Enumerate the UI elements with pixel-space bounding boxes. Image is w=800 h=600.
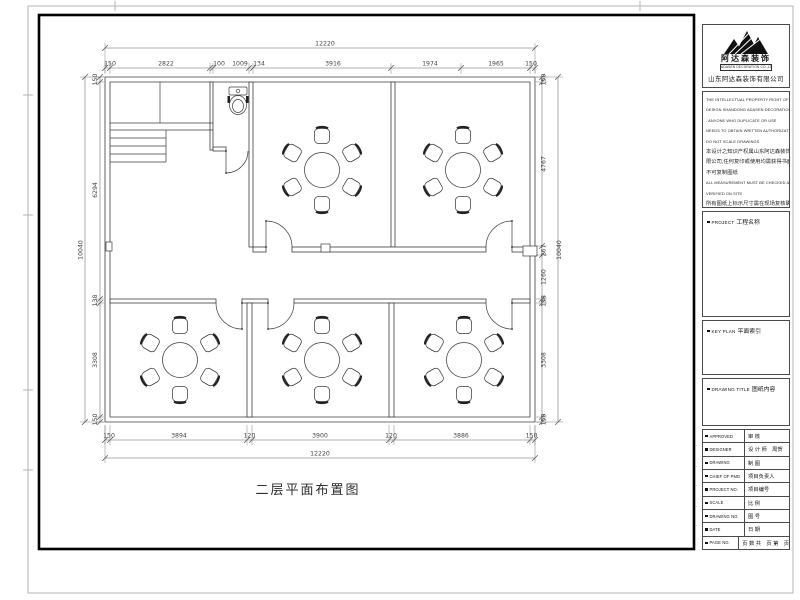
company-name: 山东阿达森装饰有限公司 bbox=[703, 74, 789, 83]
dim-label: 3886 bbox=[453, 433, 469, 440]
project-section: PROJECT 工程名称 bbox=[702, 211, 790, 317]
chair bbox=[315, 387, 330, 404]
disclaimer-line: THE INTELLECTUAL PROPERTY RIGHT OF THIS bbox=[706, 95, 788, 105]
chair bbox=[341, 177, 363, 198]
chair bbox=[315, 317, 330, 334]
row-label: PAGE NO. bbox=[703, 537, 738, 549]
chair bbox=[422, 142, 444, 163]
dim-label: 100 bbox=[213, 61, 225, 68]
dim-label: 150 bbox=[525, 61, 537, 68]
disclaimer-line: . ANYONE WHO DUPLICATE OR USE bbox=[706, 116, 788, 126]
dim-label: 3900 bbox=[312, 433, 328, 440]
bullet-icon bbox=[705, 435, 708, 438]
dim-label: 12220 bbox=[310, 451, 330, 458]
round-table bbox=[447, 343, 482, 378]
dim-label: 10040 bbox=[556, 240, 563, 260]
row-label: CHIEF OF PMD bbox=[703, 470, 744, 482]
hall-partition-wall bbox=[249, 82, 253, 247]
company-logo-box: 阿达森装饰 ADASEN DECORATION CO.,LTD 山东阿达森装饰有… bbox=[702, 24, 790, 88]
row-value: 审 核 bbox=[744, 430, 789, 442]
dining-table-group bbox=[423, 317, 505, 403]
round-table bbox=[305, 343, 340, 378]
dim-label: 1974 bbox=[422, 61, 438, 68]
dim-label: 1009 bbox=[232, 61, 248, 68]
dim-label: 150 bbox=[104, 61, 116, 68]
disclaimer-line: DESIGN SHANDONG ADASEN DECORATION CO.,LT… bbox=[706, 105, 788, 115]
disclaimer-line: NEEDS TO OBTAIN WRITTEN AUTHORIZATION bbox=[706, 126, 788, 136]
plan-title: 二层平面布置图 bbox=[255, 482, 360, 497]
disclaimer-line: 不可复制图纸 bbox=[706, 168, 788, 178]
chair bbox=[341, 142, 363, 163]
drawing-title-label: DRAWING TITLE 图纸内容 bbox=[703, 379, 789, 393]
logo-name: 阿达森装饰 bbox=[703, 54, 789, 63]
row-value: 项目负责人 bbox=[744, 470, 789, 482]
toilet-fixture bbox=[228, 87, 249, 115]
disclaimer-line: DO NOT SCALE DRAWINGS bbox=[706, 137, 788, 147]
dim-label: 150 bbox=[92, 74, 99, 86]
dim-label: 3916 bbox=[325, 61, 341, 68]
dim-label: 1965 bbox=[488, 61, 504, 68]
dim-label: 3894 bbox=[171, 433, 187, 440]
row-label: APPROVED bbox=[703, 430, 744, 442]
chair bbox=[281, 142, 303, 163]
round-table bbox=[305, 153, 340, 188]
chair bbox=[281, 332, 303, 353]
chair bbox=[139, 332, 161, 353]
dim-label: 1260 bbox=[541, 269, 548, 285]
chair bbox=[456, 197, 471, 214]
bullet-icon bbox=[707, 330, 710, 333]
bullet-icon bbox=[707, 388, 710, 391]
chair bbox=[199, 367, 221, 388]
bullet-icon bbox=[707, 221, 710, 224]
dim-label: 134 bbox=[253, 61, 265, 68]
dim-label: 150 bbox=[103, 433, 115, 440]
titleblock-row: DATE日 期 bbox=[703, 522, 789, 535]
bullet-icon bbox=[705, 515, 708, 518]
wc-left-wall bbox=[210, 82, 213, 150]
chair bbox=[315, 197, 330, 214]
chair bbox=[139, 367, 161, 388]
bullet-icon bbox=[705, 475, 708, 478]
row-value: 项目编号 bbox=[744, 483, 789, 495]
dim-label: 3308 bbox=[92, 352, 99, 368]
chair bbox=[483, 367, 505, 388]
disclaimer-line: VERIFIED ON SITE bbox=[706, 189, 788, 199]
chair bbox=[281, 177, 303, 198]
dim-label: 3308 bbox=[541, 352, 548, 368]
row-label: DRAWING bbox=[703, 457, 744, 469]
dim-label: 120 bbox=[244, 433, 256, 440]
row-value: 制 图 bbox=[744, 457, 789, 469]
bullet-icon bbox=[705, 488, 708, 491]
chair bbox=[423, 332, 445, 353]
dim-label: 10040 bbox=[78, 240, 85, 260]
titleblock-row: PROJECT NO.项目编号 bbox=[703, 482, 789, 495]
row-value: 设 计 师 周贺 bbox=[744, 443, 789, 455]
dim-label: 150 bbox=[526, 433, 538, 440]
bullet-icon bbox=[705, 542, 708, 545]
key-plan-section: KEY PLAN 平面索引 bbox=[702, 320, 790, 375]
dim-label: 267 bbox=[541, 245, 548, 257]
title-block: 阿达森装饰 ADASEN DECORATION CO.,LTD 山东阿达森装饰有… bbox=[702, 24, 791, 554]
staircase bbox=[110, 82, 213, 162]
row-label: SCALE bbox=[703, 497, 744, 509]
dining-table-group bbox=[422, 127, 504, 213]
dining-table-group bbox=[281, 127, 363, 213]
bottom-partition-wall-right bbox=[389, 303, 394, 417]
titleblock-row: DESIGNER设 计 师 周贺 bbox=[703, 442, 789, 455]
floor-plan-canvas: 1222015028221001009134391619741965150150… bbox=[0, 0, 800, 600]
row-value: 日 期 bbox=[744, 523, 789, 535]
row-value: 页 数 共 页 第 页 bbox=[738, 537, 789, 549]
round-table bbox=[446, 153, 481, 188]
chair bbox=[341, 332, 363, 353]
chair bbox=[173, 387, 188, 404]
chair bbox=[457, 387, 472, 404]
bullet-icon bbox=[705, 462, 708, 465]
chair bbox=[423, 367, 445, 388]
row-label: DRAWING NO. bbox=[703, 510, 744, 522]
row-label: DATE bbox=[703, 523, 744, 535]
chair bbox=[482, 177, 504, 198]
wc-bottom-wall bbox=[213, 147, 226, 151]
key-plan-label: KEY PLAN 平面索引 bbox=[703, 321, 789, 335]
bullet-icon bbox=[705, 448, 708, 451]
info-rows-table: APPROVED审 核DESIGNER设 计 师 周贺DRAWING制 图CHI… bbox=[702, 429, 790, 550]
drawing-title-section: DRAWING TITLE 图纸内容 bbox=[702, 378, 790, 426]
dim-label: 138 bbox=[92, 295, 99, 307]
titleblock-row: DRAWING NO.图 号 bbox=[703, 509, 789, 522]
top-rooms-partition-wall bbox=[391, 82, 395, 247]
dim-label: 150 bbox=[541, 74, 548, 86]
row-label: DESIGNER bbox=[703, 443, 744, 455]
logo-tagline: ADASEN DECORATION CO.,LTD bbox=[720, 64, 772, 71]
dim-label: 4767 bbox=[541, 156, 548, 172]
bullet-icon bbox=[705, 528, 708, 531]
disclaimer-line: 所有图纸上标示尺寸需在现场复核确定 bbox=[706, 199, 788, 208]
chair bbox=[173, 317, 188, 334]
dim-label: 2822 bbox=[158, 61, 174, 68]
dim-label: 12220 bbox=[315, 41, 335, 48]
dim-label: 6294 bbox=[92, 182, 99, 198]
dining-table-group bbox=[139, 317, 221, 403]
chair bbox=[456, 127, 471, 144]
dim-label: 120 bbox=[385, 433, 397, 440]
dim-label: 138 bbox=[541, 295, 548, 307]
dim-label: 150 bbox=[92, 414, 99, 426]
titleblock-row: PAGE NO.页 数 共 页 第 页 bbox=[703, 536, 789, 549]
drawing-sheet: 1222015028221001009134391619741965150150… bbox=[0, 0, 800, 600]
sheet-border bbox=[23, 1, 793, 593]
round-table bbox=[163, 343, 198, 378]
bottom-partition-wall-left bbox=[247, 303, 252, 417]
dining-table-group bbox=[281, 317, 363, 403]
titleblock-row: APPROVED审 核 bbox=[703, 430, 789, 442]
row-value: 比 例 bbox=[744, 497, 789, 509]
disclaimer-box: THE INTELLECTUAL PROPERTY RIGHT OF THISD… bbox=[702, 91, 790, 208]
chair bbox=[483, 332, 505, 353]
drawing-frame bbox=[39, 15, 694, 549]
chair bbox=[422, 177, 444, 198]
disclaimer-line: 本设计之知识产权属山东阿达森装饰有 bbox=[706, 147, 788, 157]
disclaimer-line: 限公司,任何复印或使用均需获得书面授权, bbox=[706, 157, 788, 167]
chair bbox=[315, 127, 330, 144]
row-value: 图 号 bbox=[744, 510, 789, 522]
chair bbox=[482, 142, 504, 163]
chair bbox=[457, 317, 472, 334]
chair bbox=[281, 367, 303, 388]
titleblock-row: SCALE比 例 bbox=[703, 496, 789, 509]
bullet-icon bbox=[705, 502, 708, 505]
row-label: PROJECT NO. bbox=[703, 483, 744, 495]
furniture-layer bbox=[139, 127, 505, 403]
chair bbox=[199, 332, 221, 353]
titleblock-row: DRAWING制 图 bbox=[703, 456, 789, 469]
titleblock-row: CHIEF OF PMD项目负责人 bbox=[703, 469, 789, 482]
disclaimer-line: ALL MEASUREMENT MUST BE CHECKED AND bbox=[706, 178, 788, 188]
project-label: PROJECT 工程名称 bbox=[703, 212, 789, 226]
chair bbox=[341, 367, 363, 388]
company-logo-icon bbox=[720, 28, 772, 54]
dim-label: 150 bbox=[541, 414, 548, 426]
